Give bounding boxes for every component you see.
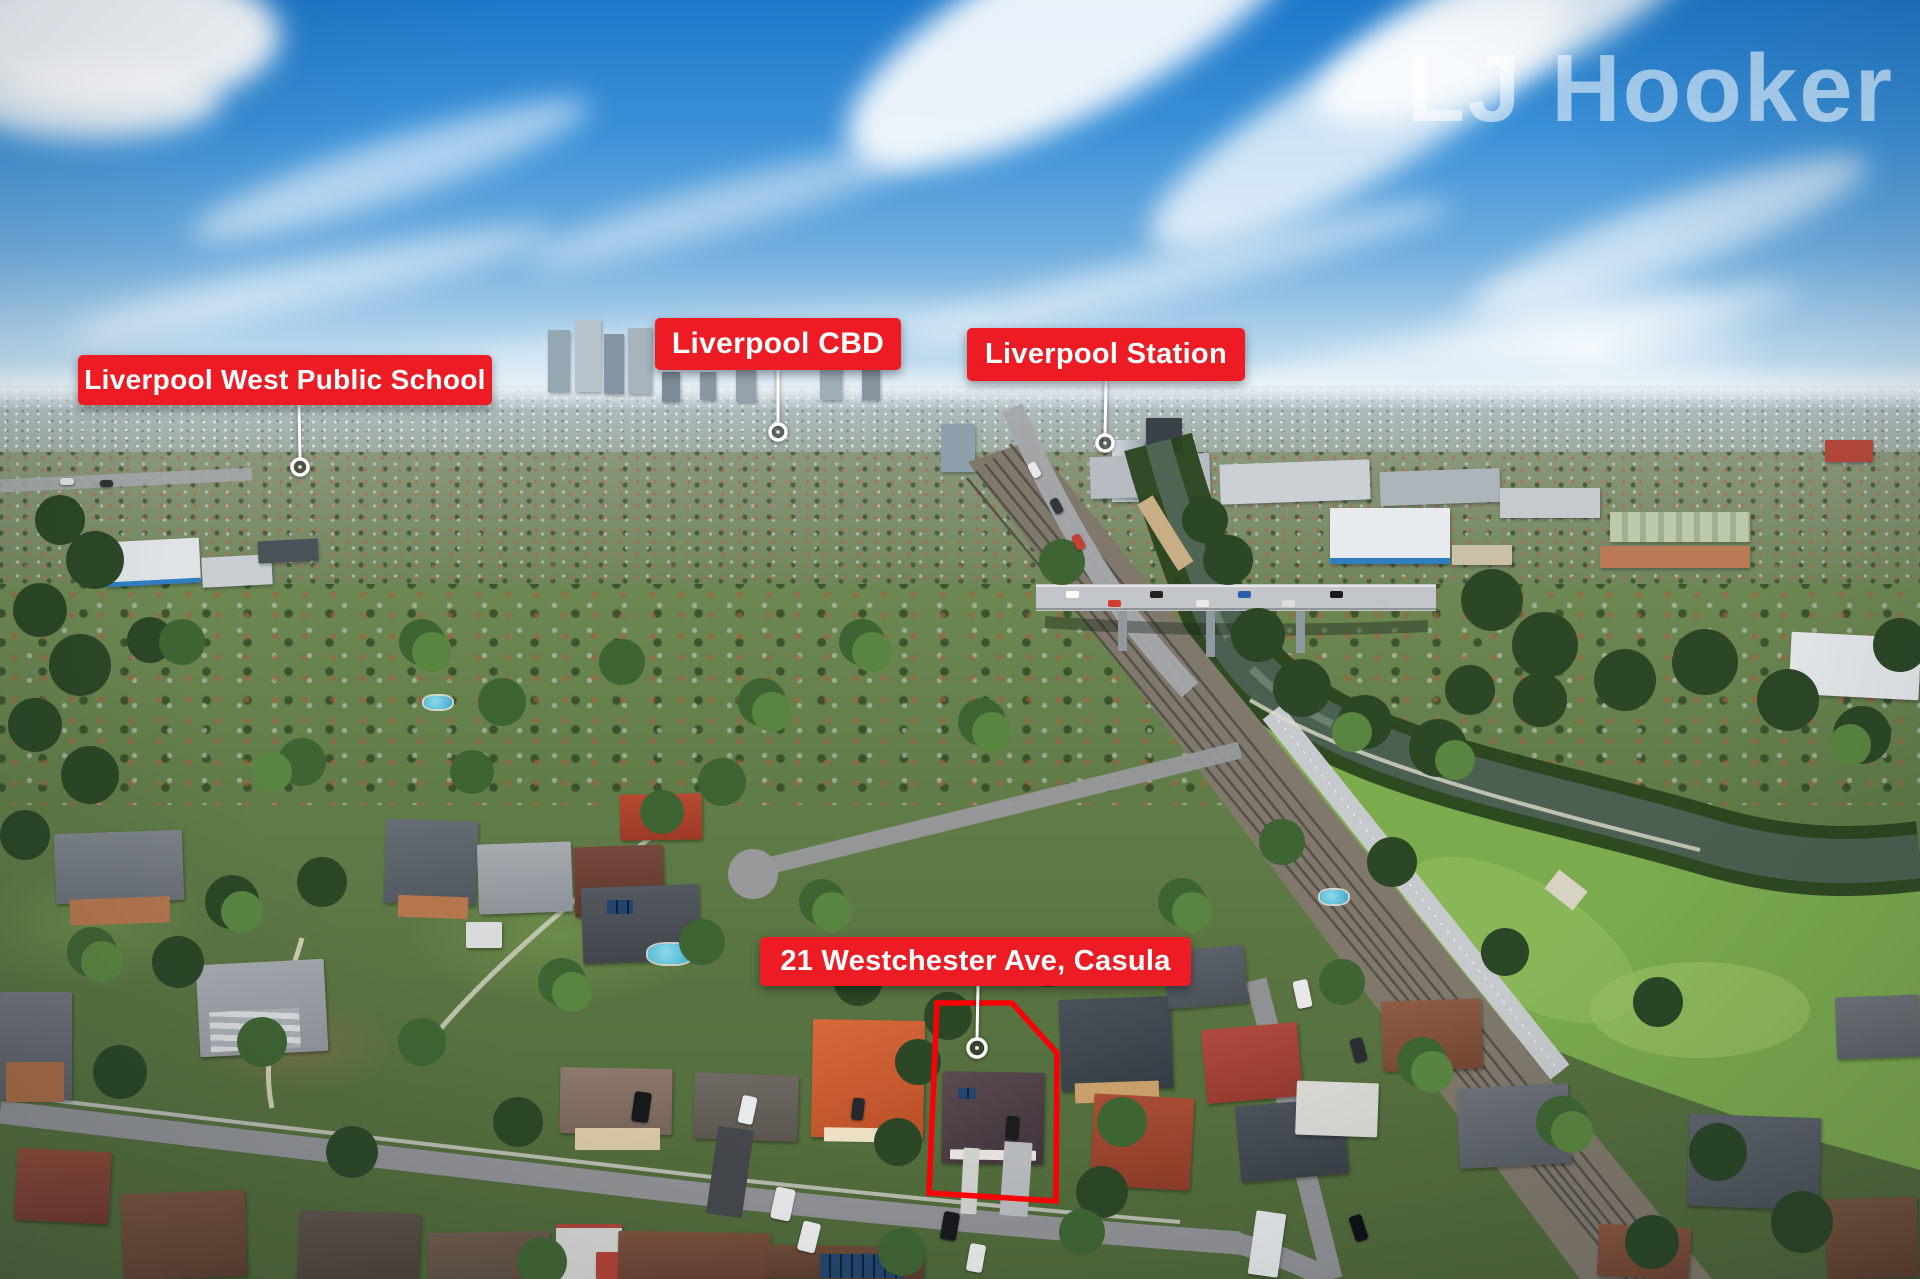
label-text: Liverpool CBD (672, 327, 884, 361)
station-marker-dot (1103, 441, 1107, 445)
cbd-marker-dot (776, 430, 780, 434)
label-liverpool-cbd: Liverpool CBD (655, 318, 901, 370)
school-leader-line (299, 405, 300, 458)
property-boundary-outline (929, 1003, 1057, 1201)
label-text: Liverpool Station (985, 338, 1227, 371)
station-leader-line (1105, 381, 1106, 434)
label-liverpool-station: Liverpool Station (967, 328, 1245, 381)
label-liverpool-west-public-school: Liverpool West Public School (78, 355, 492, 405)
label-property-address: 21 Westchester Ave, Casula (760, 937, 1191, 986)
label-text: Liverpool West Public School (84, 364, 486, 396)
annotation-overlay (0, 0, 1920, 1279)
lj-hooker-watermark: LJ Hooker (1407, 34, 1894, 144)
property-marker-dot (975, 1046, 979, 1050)
school-marker-dot (298, 465, 302, 469)
aerial-photo: Liverpool West Public School Liverpool C… (0, 0, 1920, 1279)
label-text: 21 Westchester Ave, Casula (780, 945, 1170, 978)
property-leader-line (977, 986, 978, 1039)
